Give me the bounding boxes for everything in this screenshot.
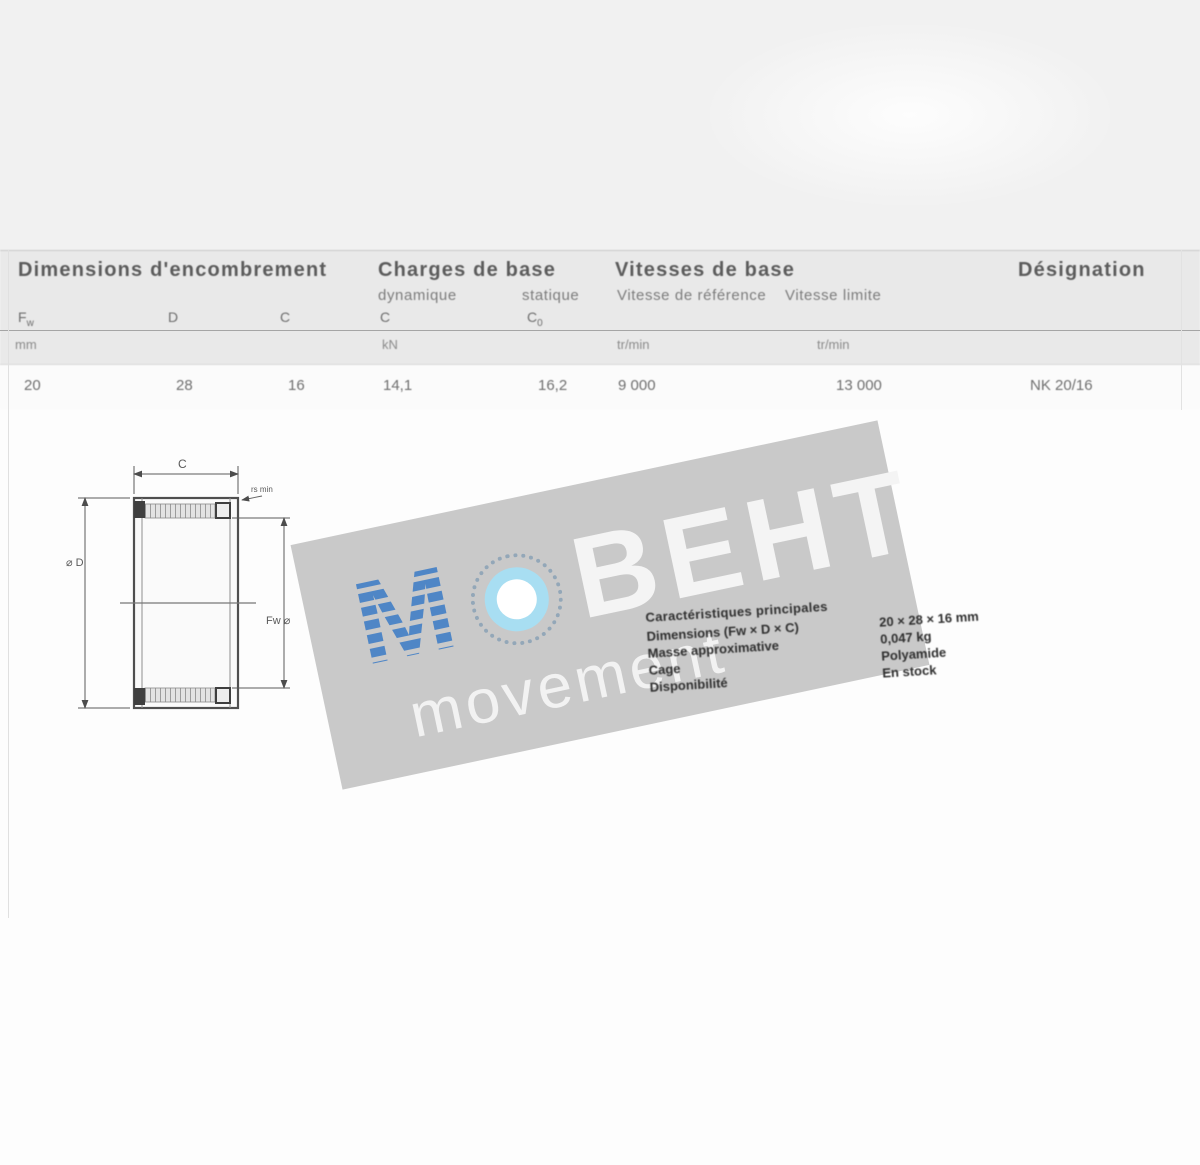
dimension-width: C (134, 457, 238, 494)
group-dimensions-label: Dimensions d'encombrement (18, 259, 327, 282)
cell-designation: NK 20/16 (1030, 377, 1093, 394)
dim-label-outer: ⌀ D (66, 557, 84, 569)
symbol-fw-base: F (18, 309, 27, 325)
group-speeds-label: Vitesses de base (615, 259, 795, 282)
dim-label-width: C (178, 457, 187, 471)
cell-speed-ref: 9 000 (618, 377, 656, 394)
subheader-speed-ref: Vitesse de référence (617, 287, 766, 304)
spec-table-header: Dimensions d'encombrement Charges de bas… (0, 250, 1200, 365)
dim-label-bore: Fw ⌀ (266, 615, 291, 627)
unit-dimensions: mm (15, 337, 37, 352)
unit-speed-lim: tr/min (817, 337, 850, 352)
group-loads-label: Charges de base (378, 259, 556, 282)
background-highlight (700, 20, 1120, 210)
page: Dimensions d'encombrement Charges de bas… (0, 0, 1200, 1165)
cell-d: 28 (176, 377, 193, 394)
left-edge-line (8, 250, 9, 918)
bearing-target-icon (463, 545, 572, 654)
unit-loads: kN (382, 337, 398, 352)
top-background (0, 0, 1200, 250)
symbol-c-dyn: C (380, 309, 390, 325)
cell-c-stat: 16,2 (538, 377, 567, 394)
symbol-c-stat-base: C (527, 309, 537, 325)
bearing-target-icon-core (479, 561, 555, 637)
logo-m-letter: М (345, 548, 466, 684)
right-edge-line (1181, 250, 1182, 410)
symbol-c-stat-sub: 0 (537, 318, 543, 329)
cell-c: 16 (288, 377, 305, 394)
subheader-speed-lim: Vitesse limite (785, 287, 882, 304)
cell-c-dyn: 14,1 (383, 377, 412, 394)
dimension-chamfer: rs min (242, 485, 273, 500)
bearing-outline (120, 498, 256, 708)
header-divider (0, 330, 1200, 331)
dim-label-chamfer: rs min (251, 485, 273, 494)
symbol-fw: Fw (18, 309, 34, 329)
symbol-d: D (168, 309, 178, 325)
symbol-c-stat: C0 (527, 309, 543, 329)
subheader-static: statique (522, 287, 579, 304)
symbol-fw-sub: w (27, 318, 34, 329)
bearing-cross-section-drawing: C rs min ⌀ D Fw ⌀ (58, 428, 326, 726)
cell-fw: 20 (24, 377, 41, 394)
symbol-c: C (280, 309, 290, 325)
unit-speed-ref: tr/min (617, 337, 650, 352)
cell-speed-lim: 13 000 (836, 377, 882, 394)
subheader-dynamic: dynamique (378, 287, 457, 304)
table-row: 20 28 16 14,1 16,2 9 000 13 000 NK 20/16 (0, 364, 1200, 409)
group-designation-label: Désignation (1018, 259, 1146, 282)
